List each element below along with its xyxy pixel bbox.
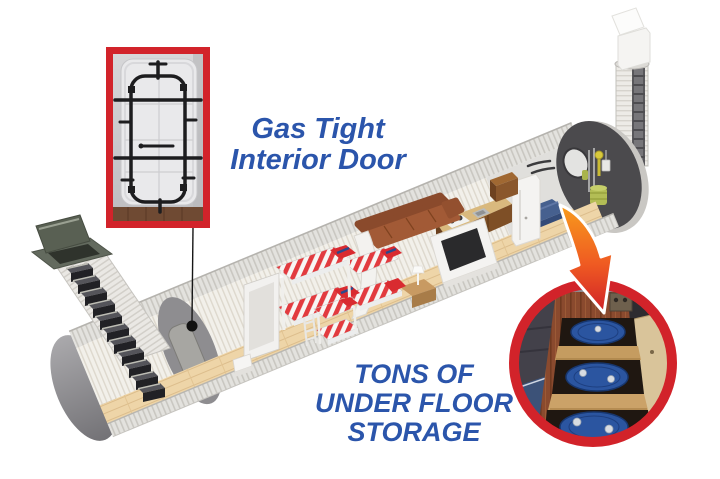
leader-dot bbox=[187, 321, 198, 332]
door-callout-label: Gas Tight Interior Door bbox=[218, 114, 418, 176]
gas-tight-door-photo bbox=[106, 47, 210, 228]
right-hatch-icon bbox=[612, 8, 650, 70]
door-callout-line1: Gas Tight bbox=[218, 114, 418, 145]
door-callout-line2: Interior Door bbox=[218, 145, 418, 176]
storage-callout-label: TONS OF UNDER FLOOR STORAGE bbox=[314, 360, 514, 447]
storage-callout-line1: TONS OF bbox=[314, 360, 514, 389]
storage-callout-line3: STORAGE bbox=[314, 418, 514, 447]
under-floor-storage-photo bbox=[509, 279, 677, 456]
storage-callout-line2: UNDER FLOOR bbox=[314, 389, 514, 418]
canister-icon bbox=[590, 185, 607, 205]
promo-image: Gas Tight Interior Door TONS OF UNDER FL… bbox=[0, 0, 720, 479]
shower-stall bbox=[244, 273, 284, 361]
